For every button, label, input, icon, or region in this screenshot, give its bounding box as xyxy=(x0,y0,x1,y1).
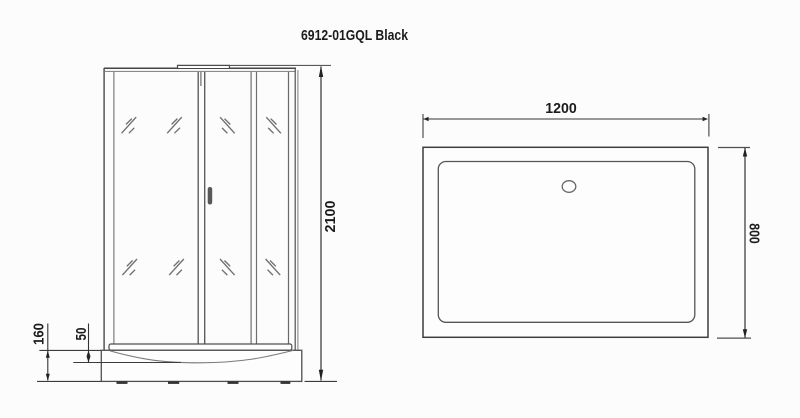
svg-text:1200: 1200 xyxy=(545,100,577,117)
svg-text:160: 160 xyxy=(32,323,48,345)
svg-text:800: 800 xyxy=(745,223,761,244)
svg-text:2100: 2100 xyxy=(322,201,339,233)
svg-text:50: 50 xyxy=(74,328,90,341)
svg-text:6912-01GQL Black: 6912-01GQL Black xyxy=(301,27,409,44)
